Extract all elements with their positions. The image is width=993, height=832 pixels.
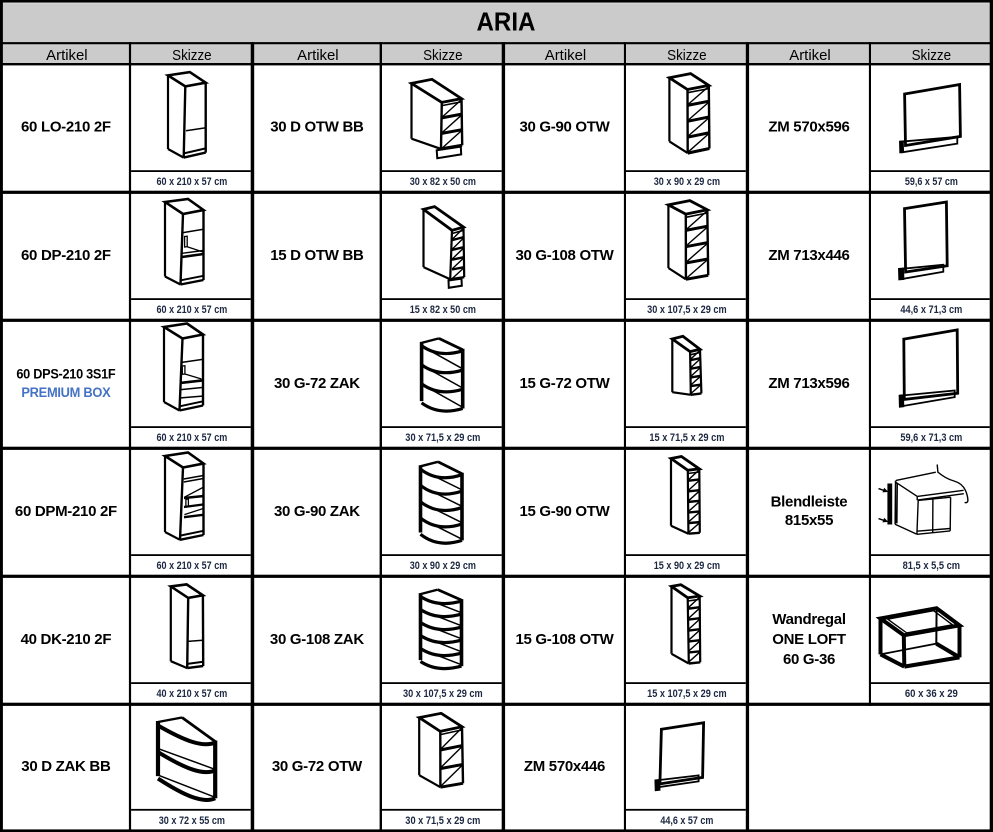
svg-text:Skizze: Skizze	[423, 47, 463, 64]
svg-text:60 x 36 x 29: 60 x 36 x 29	[905, 688, 958, 700]
svg-text:Artikel: Artikel	[545, 47, 587, 64]
svg-text:60 LO-210 2F: 60 LO-210 2F	[21, 119, 111, 136]
svg-text:15 G-90 OTW: 15 G-90 OTW	[519, 503, 610, 520]
svg-text:60 DP-210 2F: 60 DP-210 2F	[21, 247, 111, 264]
svg-text:15 G-108 OTW: 15 G-108 OTW	[515, 631, 614, 648]
svg-text:60 x 210 x 57 cm: 60 x 210 x 57 cm	[157, 560, 228, 572]
svg-text:ZM 713x446: ZM 713x446	[768, 247, 849, 264]
svg-text:30 x 90 x 29 cm: 30 x 90 x 29 cm	[410, 560, 476, 572]
svg-text:30 D OTW BB: 30 D OTW BB	[270, 119, 364, 136]
svg-text:ZM 570x446: ZM 570x446	[524, 758, 605, 775]
svg-text:30 G-90 ZAK: 30 G-90 ZAK	[274, 503, 360, 520]
svg-text:ARIA: ARIA	[477, 9, 536, 37]
svg-text:60 x 210 x 57 cm: 60 x 210 x 57 cm	[157, 304, 228, 316]
svg-text:ZM 713x596: ZM 713x596	[768, 375, 849, 392]
svg-text:81,5 x 5,5 cm: 81,5 x 5,5 cm	[903, 560, 961, 572]
svg-text:30 x 82 x 50 cm: 30 x 82 x 50 cm	[410, 176, 476, 188]
svg-text:Artikel: Artikel	[297, 47, 339, 64]
svg-text:30 x 72 x 55 cm: 30 x 72 x 55 cm	[159, 815, 225, 827]
svg-text:Skizze: Skizze	[912, 47, 952, 64]
svg-text:60 x 210 x 57 cm: 60 x 210 x 57 cm	[157, 432, 228, 444]
svg-text:30 x 71,5 x 29 cm: 30 x 71,5 x 29 cm	[405, 432, 480, 444]
svg-text:30 G-90 OTW: 30 G-90 OTW	[519, 119, 610, 136]
svg-text:40 x 210 x 57 cm: 40 x 210 x 57 cm	[157, 688, 228, 700]
svg-text:30 G-108 OTW: 30 G-108 OTW	[515, 247, 614, 264]
svg-text:815x55: 815x55	[785, 512, 833, 529]
svg-text:Skizze: Skizze	[172, 47, 212, 64]
svg-text:Wandregal: Wandregal	[772, 611, 846, 628]
svg-text:15 x 107,5 x 29 cm: 15 x 107,5 x 29 cm	[647, 688, 727, 700]
svg-text:60 x 210 x 57 cm: 60 x 210 x 57 cm	[157, 176, 228, 188]
svg-text:ONE LOFT: ONE LOFT	[772, 631, 846, 648]
svg-text:30 x 71,5 x 29 cm: 30 x 71,5 x 29 cm	[405, 815, 480, 827]
svg-text:59,6 x 71,3 cm: 59,6 x 71,3 cm	[900, 432, 962, 444]
svg-text:30 x 107,5 x 29 cm: 30 x 107,5 x 29 cm	[403, 688, 483, 700]
svg-text:40 DK-210 2F: 40 DK-210 2F	[21, 631, 112, 648]
svg-text:30 x 107,5 x 29 cm: 30 x 107,5 x 29 cm	[647, 304, 727, 316]
svg-text:Artikel: Artikel	[789, 47, 831, 64]
svg-text:44,6 x 71,3 cm: 44,6 x 71,3 cm	[900, 304, 962, 316]
svg-text:15 x 71,5 x 29 cm: 15 x 71,5 x 29 cm	[649, 432, 724, 444]
svg-text:60 DPS-210 3S1F: 60 DPS-210 3S1F	[16, 367, 115, 382]
svg-text:59,6 x 57 cm: 59,6 x 57 cm	[905, 176, 958, 188]
svg-text:Blendleiste: Blendleiste	[771, 494, 848, 511]
svg-text:15 G-72 OTW: 15 G-72 OTW	[519, 375, 610, 392]
svg-text:60 DPM-210 2F: 60 DPM-210 2F	[15, 503, 117, 520]
svg-text:15 x 90 x 29 cm: 15 x 90 x 29 cm	[654, 560, 720, 572]
svg-text:PREMIUM BOX: PREMIUM BOX	[21, 385, 110, 400]
svg-text:ZM 570x596: ZM 570x596	[768, 119, 849, 136]
svg-text:15 x 82 x 50 cm: 15 x 82 x 50 cm	[410, 304, 476, 316]
svg-text:30 x 90 x 29 cm: 30 x 90 x 29 cm	[654, 176, 720, 188]
svg-text:30 G-72 OTW: 30 G-72 OTW	[272, 758, 363, 775]
svg-text:60 G-36: 60 G-36	[783, 651, 835, 668]
svg-text:30 G-108 ZAK: 30 G-108 ZAK	[270, 631, 364, 648]
svg-text:30 D ZAK BB: 30 D ZAK BB	[21, 758, 111, 775]
svg-text:15 D OTW BB: 15 D OTW BB	[270, 247, 364, 264]
svg-text:Skizze: Skizze	[667, 47, 707, 64]
svg-text:44,6 x 57 cm: 44,6 x 57 cm	[660, 815, 713, 827]
svg-text:30 G-72 ZAK: 30 G-72 ZAK	[274, 375, 360, 392]
svg-text:Artikel: Artikel	[46, 47, 88, 64]
